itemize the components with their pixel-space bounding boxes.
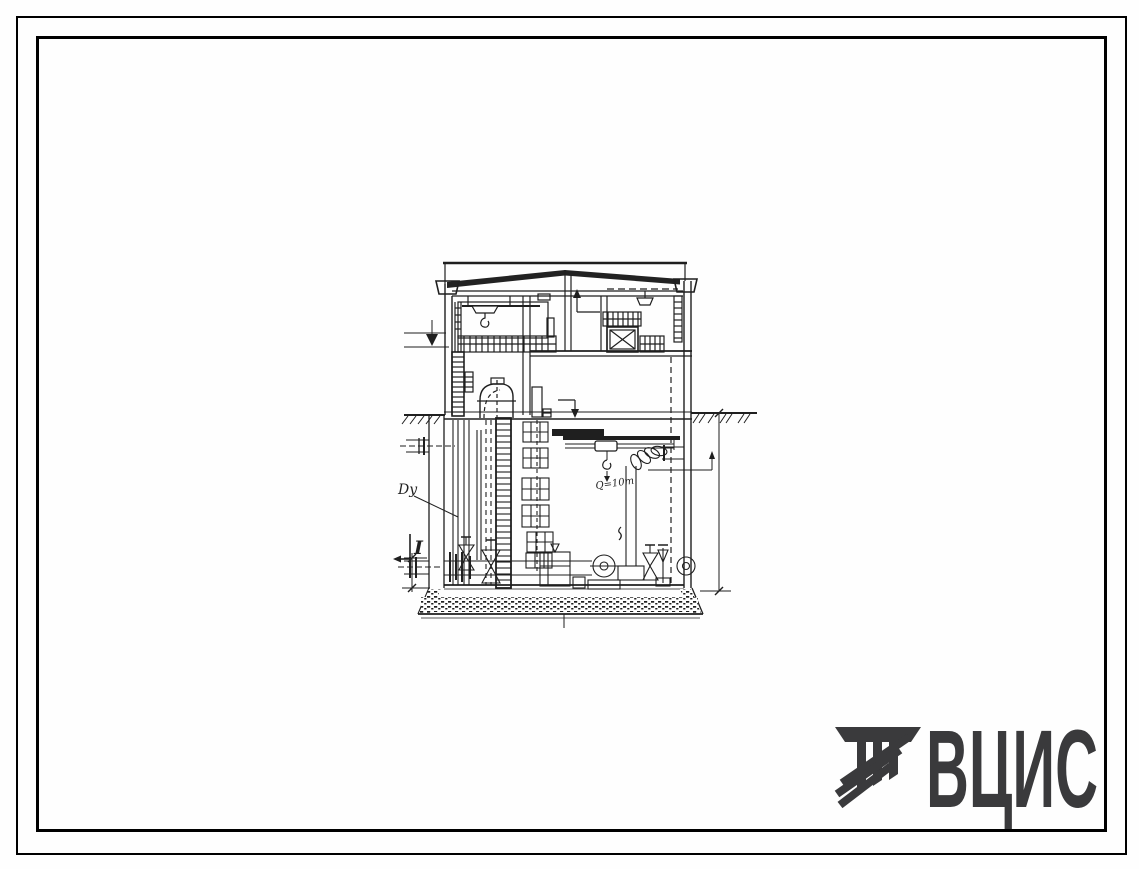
underground-structure [418,412,703,628]
label-section-mark: I [413,537,424,559]
flange-stack [522,420,553,572]
roof-slab [447,270,680,288]
wall-stub-pipes [398,437,455,578]
grille-box-1 [603,312,641,326]
handwritten-mark [619,527,622,540]
hoist-trolley [595,441,617,451]
pump [588,555,620,589]
cross-section-drawing: Dy I Q=10т ВЦ [0,0,1139,869]
vcis-logo-text: ВЦИС [926,708,1098,831]
section-mark: I [393,534,424,563]
vcis-logo-icon [835,727,921,805]
label-pipe-diameter: Dy [397,482,418,498]
building-superstructure [436,263,697,588]
label-hoist-capacity: Q=10т [595,476,635,492]
riser-ladder [496,418,511,588]
vcis-logo: ВЦИС [835,708,1098,831]
wall-pilaster [674,296,682,342]
crane-hook-icon [481,313,489,327]
grille-box-2 [640,336,664,352]
wall-ladder [452,302,473,416]
ground-and-dimensions [402,320,757,595]
discharge-riser [618,445,684,580]
crossed-equipment-box [607,327,638,352]
hoist-hook-icon [603,460,611,469]
level-marker-icon [426,334,438,346]
drawing-sheet: Dy I Q=10т ВЦ [0,0,1139,869]
